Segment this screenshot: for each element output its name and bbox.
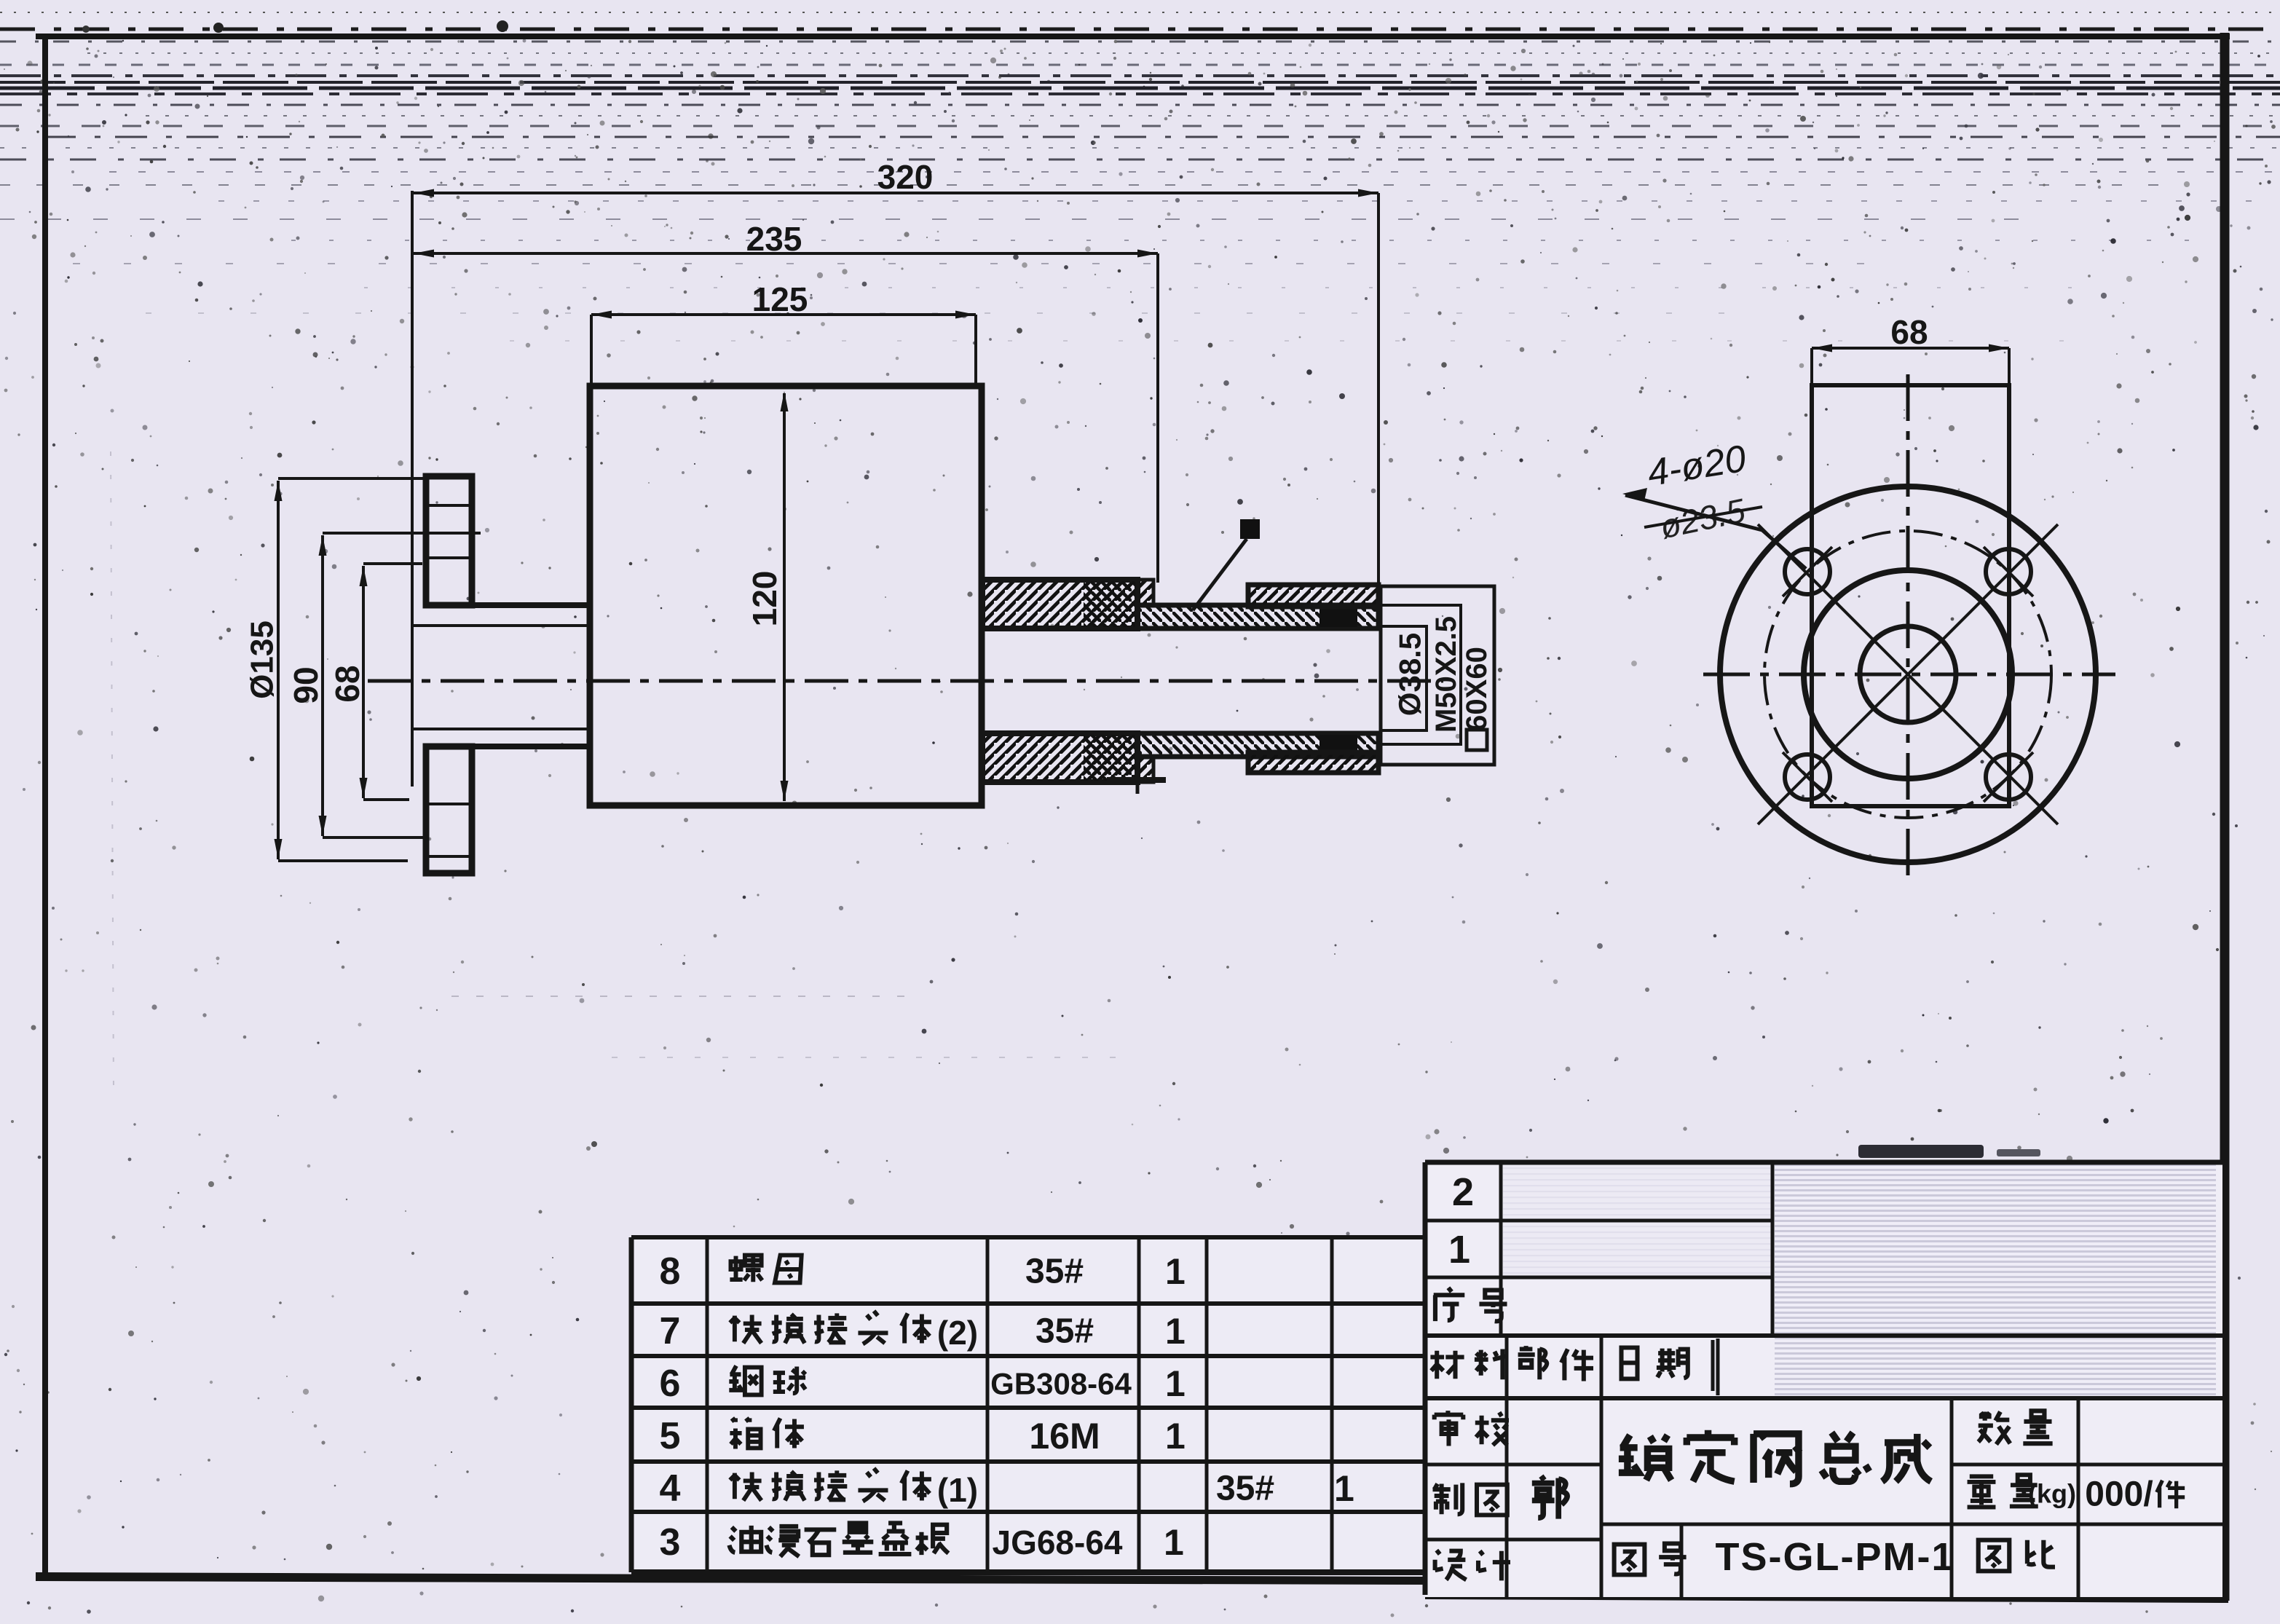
svg-text:1: 1	[1164, 1522, 1184, 1563]
svg-text:1: 1	[1165, 1251, 1186, 1292]
svg-text:Ø135: Ø135	[245, 620, 280, 699]
svg-text:(1): (1)	[937, 1471, 978, 1509]
svg-text:1: 1	[1165, 1363, 1186, 1404]
svg-text:1: 1	[1165, 1311, 1186, 1352]
svg-text:68: 68	[328, 665, 366, 702]
svg-text:(kg): (kg)	[2028, 1479, 2076, 1509]
svg-text:1: 1	[1448, 1228, 1470, 1272]
svg-text:68: 68	[1890, 313, 1928, 351]
svg-text:000/: 000/	[2085, 1475, 2153, 1514]
svg-text:5: 5	[660, 1415, 681, 1457]
svg-text:7: 7	[660, 1310, 681, 1352]
svg-text:3: 3	[660, 1521, 681, 1564]
svg-text:35#: 35#	[1025, 1253, 1084, 1291]
svg-text:8: 8	[660, 1250, 681, 1293]
svg-text:1: 1	[1334, 1468, 1354, 1509]
svg-text:235: 235	[746, 220, 802, 258]
svg-text:90: 90	[287, 666, 325, 703]
svg-text:35#: 35#	[1036, 1312, 1094, 1351]
svg-text:1: 1	[1165, 1416, 1186, 1457]
svg-text:4: 4	[660, 1467, 681, 1510]
svg-text:TS-GL-PM-1: TS-GL-PM-1	[1716, 1535, 1955, 1579]
svg-text:M50X2.5: M50X2.5	[1430, 616, 1462, 733]
svg-text:6: 6	[660, 1363, 681, 1405]
svg-text:2: 2	[1452, 1170, 1474, 1214]
svg-text:125: 125	[752, 280, 808, 318]
svg-text:320: 320	[877, 158, 934, 196]
svg-text:(2): (2)	[937, 1314, 978, 1352]
svg-text:35#: 35#	[1216, 1470, 1274, 1508]
svg-text:120: 120	[746, 571, 784, 627]
svg-text:GB308-64: GB308-64	[990, 1367, 1132, 1401]
svg-text:JG68-64: JG68-64	[992, 1524, 1122, 1561]
svg-text:Ø38.5: Ø38.5	[1393, 633, 1427, 716]
svg-text:60X60: 60X60	[1461, 647, 1493, 731]
svg-text:16M: 16M	[1029, 1416, 1100, 1457]
